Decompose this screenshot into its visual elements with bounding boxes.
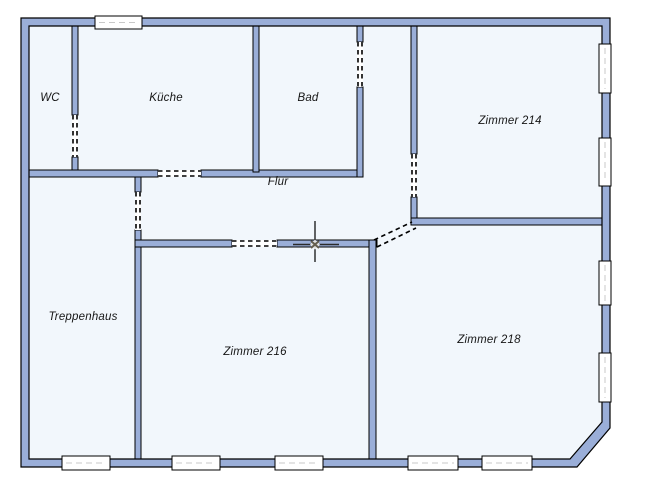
wall-kueche-bad bbox=[253, 24, 259, 172]
door-kueche-flur bbox=[158, 170, 201, 177]
floor-plan-drawing bbox=[0, 0, 657, 501]
wall-bad-east-lower bbox=[357, 87, 363, 177]
room-label-zimmer-216: Zimmer 216 bbox=[223, 346, 286, 358]
wall-zimmer216-east bbox=[369, 240, 376, 462]
room-label-treppenhaus: Treppenhaus bbox=[48, 311, 117, 323]
wall-treppenhaus-east-lower bbox=[135, 230, 141, 462]
room-label-zimmer-214: Zimmer 214 bbox=[478, 115, 541, 127]
wall-zimmer214-south bbox=[411, 218, 602, 225]
door-zimmer-214 bbox=[411, 154, 417, 197]
wall-zimmer216-north-left bbox=[135, 240, 232, 247]
wall-zimmer214-west-upper bbox=[411, 24, 417, 154]
door-bad-flur bbox=[357, 42, 363, 87]
door-zimmer-216 bbox=[232, 240, 277, 247]
wall-zimmer216-north-right bbox=[277, 240, 377, 247]
room-label-bad: Bad bbox=[297, 92, 318, 104]
room-label-flur: Flur bbox=[268, 176, 289, 188]
wall-flur-north-left bbox=[29, 170, 158, 177]
room-label-wc: WC bbox=[40, 92, 60, 104]
floor-plan-canvas: WC Küche Bad Flur Zimmer 214 Treppenhaus… bbox=[0, 0, 657, 501]
room-label-zimmer-218: Zimmer 218 bbox=[457, 334, 520, 346]
wall-wc-kueche-upper bbox=[72, 24, 78, 115]
wall-treppenhaus-east-upper bbox=[135, 177, 141, 192]
room-label-kueche: Küche bbox=[149, 92, 183, 104]
wall-bad-east-upper bbox=[357, 24, 363, 42]
